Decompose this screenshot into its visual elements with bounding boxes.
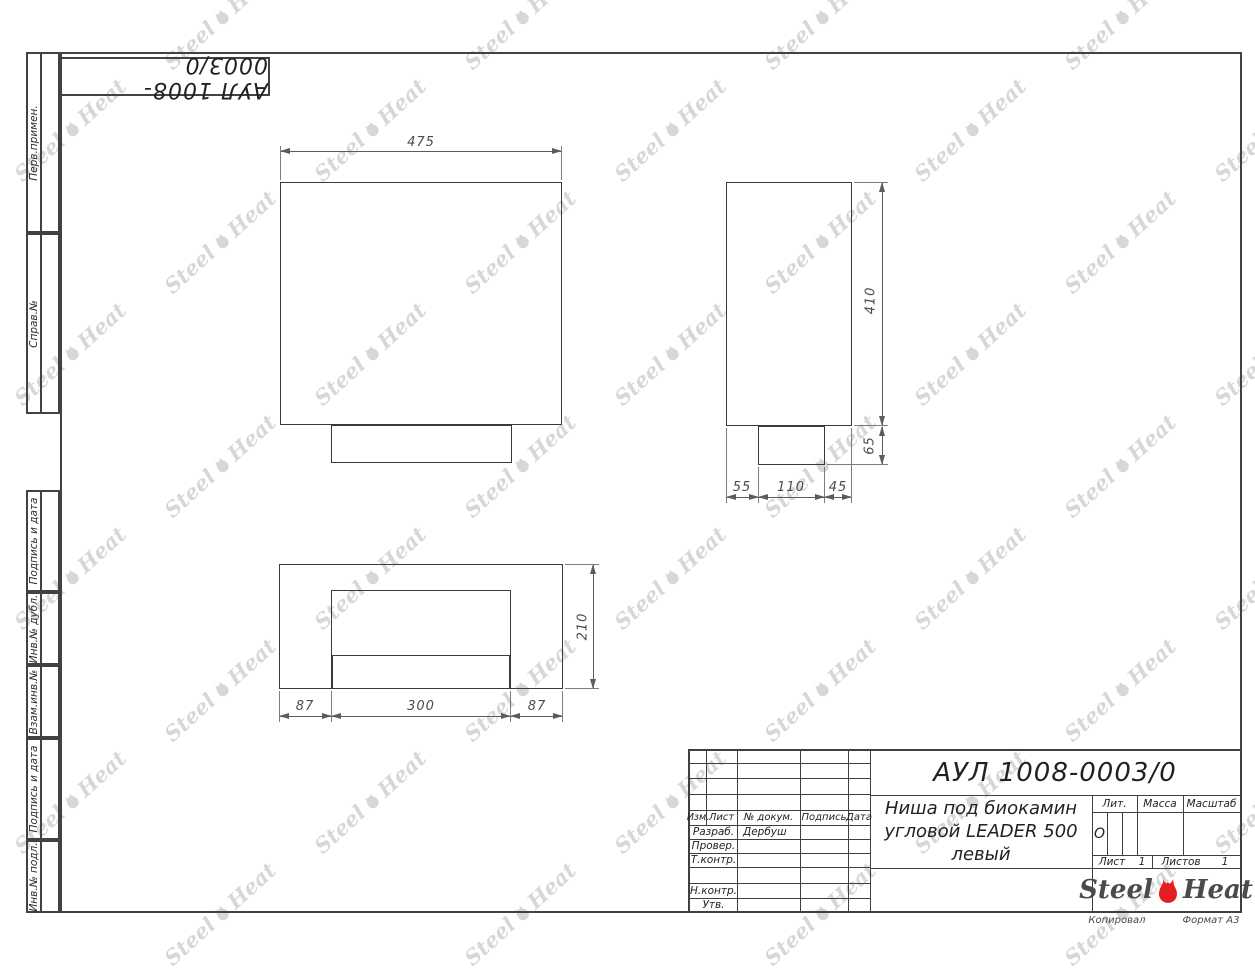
- dim-label-plan-depth: 210: [576, 602, 591, 652]
- divider: [40, 667, 42, 736]
- dim-label-87a: 87: [280, 699, 330, 714]
- row-nkontr: Н.контр.: [690, 883, 737, 898]
- steelheat-logo: Steel Heat: [1079, 875, 1253, 905]
- grid-line: [848, 751, 849, 911]
- dim-line-base-height: [882, 427, 883, 464]
- front-view-base: [331, 425, 512, 463]
- sidebar-label: Взам.инв.№: [28, 669, 40, 734]
- col-list: Лист: [706, 810, 737, 825]
- grid-line: [1092, 812, 1240, 813]
- divider: [40, 54, 42, 231]
- lit-header: Лит.: [1092, 796, 1137, 811]
- row-tkontr: Т.контр.: [690, 853, 737, 867]
- plan-view-edge-right: [509, 656, 511, 689]
- front-view-body: [280, 182, 562, 425]
- scale-header: Масштаб: [1183, 796, 1240, 811]
- dim-line-seg-300: [332, 716, 510, 717]
- side-view-body: [726, 182, 852, 426]
- col-izm: Изм.: [690, 810, 706, 825]
- title-block: АУЛ 1008-0003/0 Ниша под биокамин углово…: [688, 749, 1242, 913]
- dim-label-55: 55: [717, 480, 767, 495]
- col-data: Дата: [848, 810, 870, 825]
- col-docnum: № докум.: [737, 810, 800, 825]
- row-razrab: Разраб.: [690, 825, 737, 839]
- divider: [40, 492, 42, 590]
- sidebar-label: Инв.№ дубл.: [28, 594, 40, 663]
- dim-line-seg-45: [825, 497, 851, 498]
- divider: [40, 740, 42, 838]
- dim-line-seg-110: [759, 497, 824, 498]
- grid-line: [690, 794, 870, 795]
- sidebar-box-sprav-no: Справ.№: [26, 233, 60, 414]
- sidebar-box-podpis-data-2: Подпись и дата: [26, 738, 60, 840]
- dim-label-45: 45: [813, 480, 863, 495]
- top-designation-stamp: АУЛ 1008-0003/0: [60, 57, 270, 96]
- sidebar-label: Инв.№ подл.: [28, 842, 40, 911]
- row-razrab-name: Дербуш: [739, 825, 800, 839]
- copied-note: Копировал: [1067, 915, 1167, 926]
- side-view-base: [758, 426, 825, 465]
- dim-label-front-width: 475: [396, 135, 446, 150]
- logo-steel-text: Steel: [1079, 875, 1153, 905]
- sidebar-label: Перв.примен.: [28, 105, 40, 180]
- lit-value: О: [1092, 812, 1107, 855]
- flame-icon: [1156, 875, 1180, 905]
- row-blank: [690, 867, 737, 883]
- plan-view-opening: [331, 590, 511, 656]
- dim-label-300: 300: [396, 699, 446, 714]
- sidebar-label: Подпись и дата: [28, 746, 40, 833]
- sheets-value: 1: [1215, 855, 1235, 868]
- row-utv: Утв.: [690, 898, 737, 911]
- sidebar-box-vzam-inv: Взам.инв.№: [26, 665, 60, 738]
- divider: [40, 594, 42, 663]
- grid-line: [1122, 812, 1123, 855]
- grid-line: [1152, 855, 1153, 868]
- dim-label-87b: 87: [512, 699, 562, 714]
- grid-line: [800, 751, 801, 911]
- dim-line-seg-87a: [280, 716, 331, 717]
- row-prover: Провер.: [690, 839, 737, 853]
- sidebar-label: Справ.№: [28, 300, 40, 348]
- titleblock-part-name: Ниша под биокамин угловой LEADER 500 лев…: [870, 795, 1092, 868]
- plan-view-edge-left: [331, 656, 333, 689]
- sheet-value: 1: [1132, 855, 1152, 868]
- titleblock-designation: АУЛ 1008-0003/0: [870, 751, 1240, 795]
- sheets-label: Листов: [1156, 855, 1206, 868]
- dim-line-front-width: [281, 151, 561, 152]
- dim-line-side-height: [882, 183, 883, 425]
- logo-cell: Steel Heat: [1092, 868, 1240, 911]
- divider: [40, 842, 42, 911]
- dim-label-base-height: 65: [863, 421, 878, 471]
- dim-line-plan-depth: [593, 565, 594, 688]
- col-podpis: Подпись: [800, 810, 848, 825]
- part-name-line-2: угловой LEADER 500: [884, 820, 1077, 843]
- grid-line: [1107, 812, 1108, 855]
- mass-header: Масса: [1137, 796, 1183, 811]
- dim-label-110: 110: [766, 480, 816, 495]
- sidebar-box-podpis-data-1: Подпись и дата: [26, 490, 60, 592]
- grid-line: [690, 763, 870, 764]
- top-designation-text: АУЛ 1008-0003/0: [62, 52, 268, 102]
- format-note: Формат А3: [1165, 915, 1255, 926]
- part-name-line-3: левый: [951, 843, 1010, 866]
- logo-heat-text: Heat: [1183, 875, 1253, 905]
- part-name-line-1: Ниша под биокамин: [885, 797, 1077, 820]
- sheet-label: Лист: [1092, 855, 1132, 868]
- grid-line: [690, 778, 870, 779]
- dim-line-seg-87b: [511, 716, 562, 717]
- divider: [40, 235, 42, 412]
- sidebar-box-inv-dubl: Инв.№ дубл.: [26, 592, 60, 665]
- dim-line-seg-55: [727, 497, 758, 498]
- dim-label-side-height: 410: [864, 276, 879, 326]
- sidebar-box-perv-primen: Перв.примен.: [26, 52, 60, 233]
- sidebar-box-inv-podl: Инв.№ подл.: [26, 840, 60, 913]
- sidebar-label: Подпись и дата: [28, 498, 40, 585]
